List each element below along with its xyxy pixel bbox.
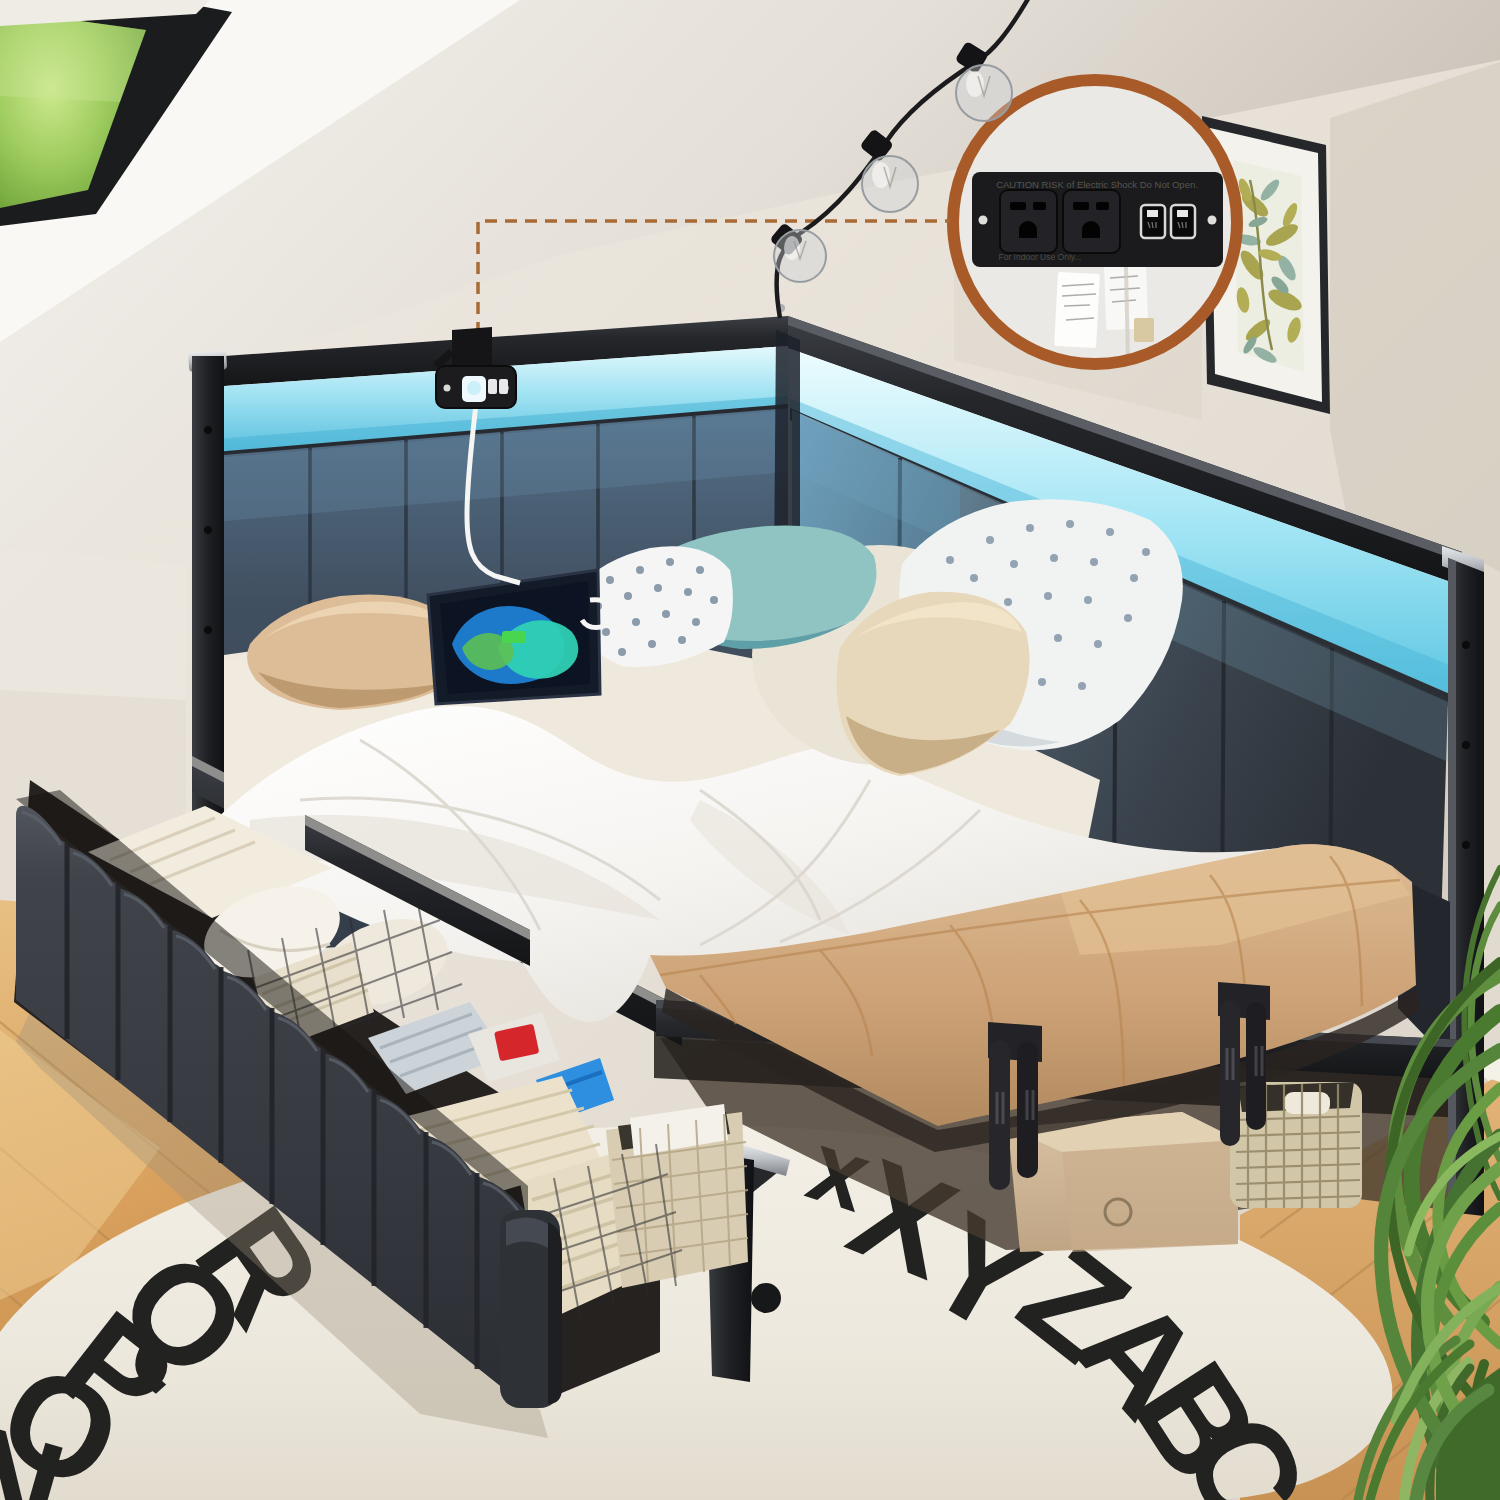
svg-text:CAUTION RISK of Electric Shock: CAUTION RISK of Electric Shock Do Not Op… — [996, 179, 1198, 190]
